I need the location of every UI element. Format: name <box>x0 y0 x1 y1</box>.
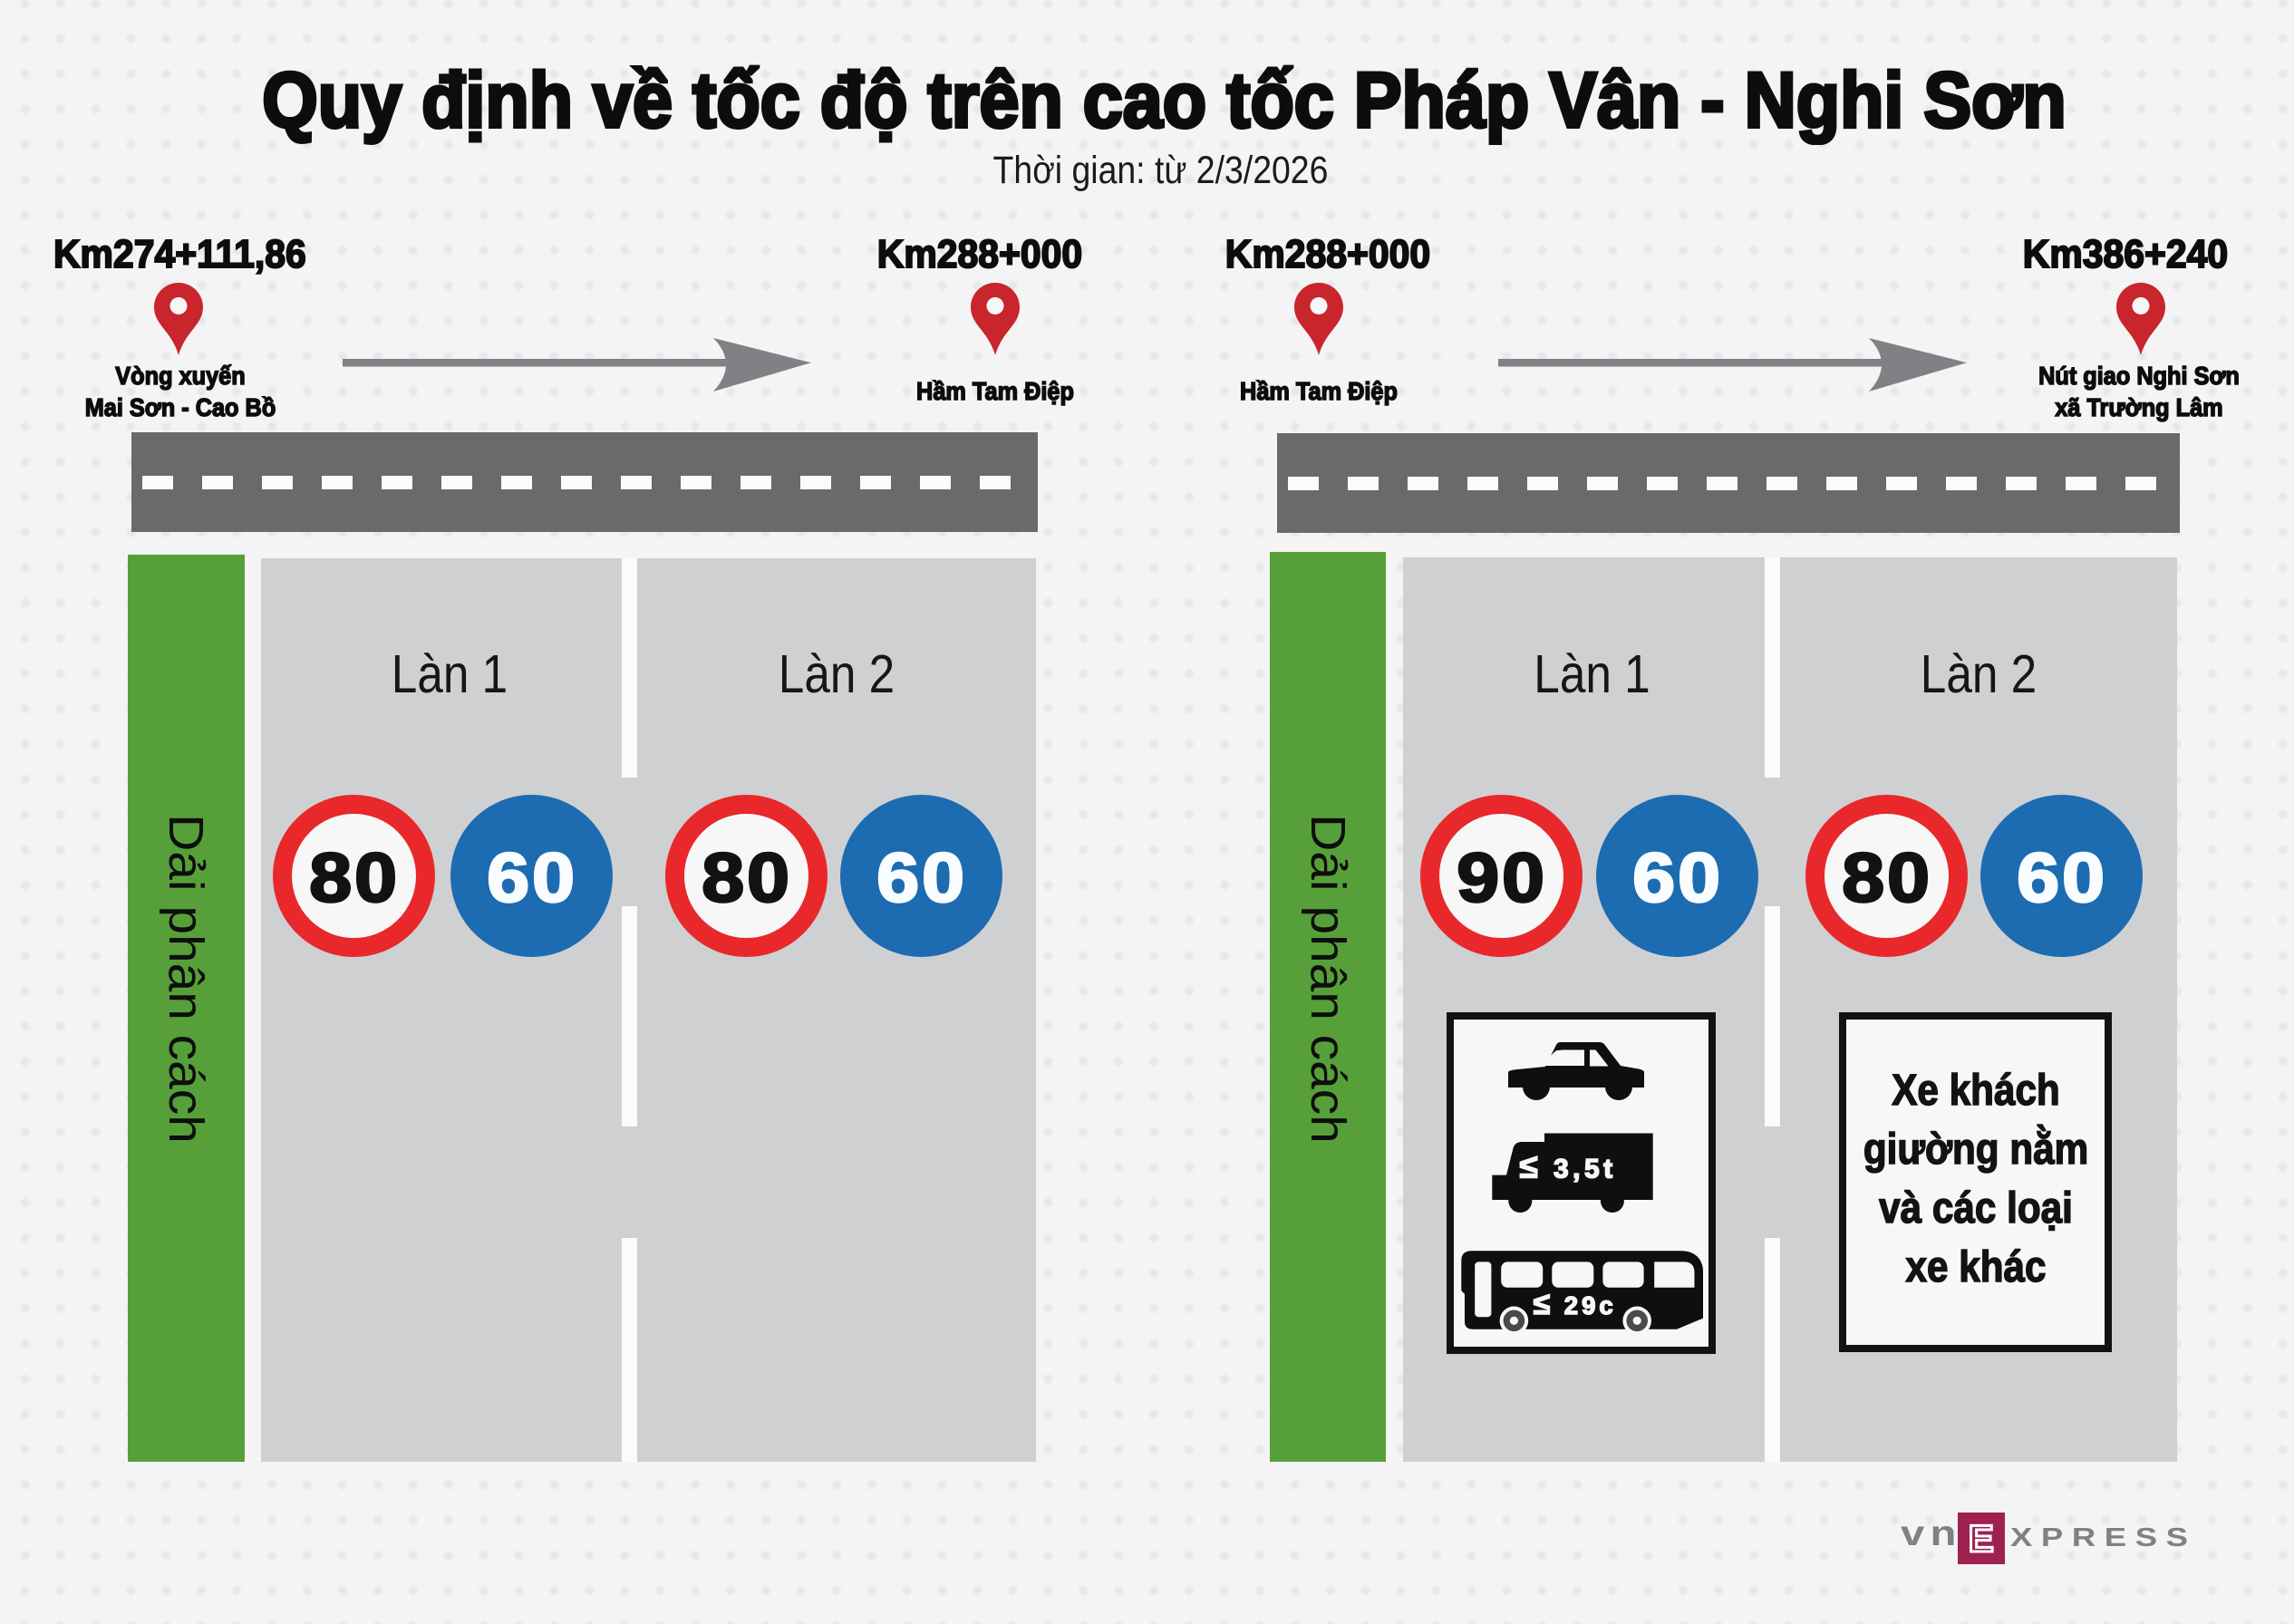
svg-text:≤ 29c: ≤ 29c <box>1533 1287 1616 1321</box>
svg-text:≤ 3,5t: ≤ 3,5t <box>1519 1148 1616 1185</box>
